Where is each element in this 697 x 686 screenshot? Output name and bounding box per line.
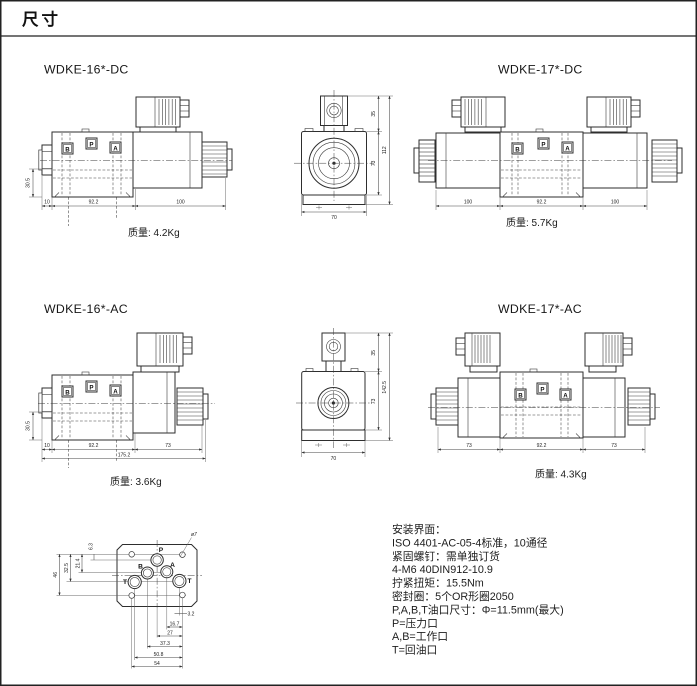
end-plug (39, 388, 52, 418)
svg-text:73: 73 (371, 398, 377, 404)
drawing-wdke-16-dc-side: WDKE-16*-DC (26, 63, 233, 240)
dim-30-5: 30.5 (26, 178, 32, 188)
svg-text:92.2: 92.2 (89, 443, 99, 449)
svg-text:27: 27 (167, 630, 173, 636)
electrical-connector-left (456, 333, 500, 372)
knurled-nut-left (414, 140, 435, 182)
svg-text:B: B (515, 146, 520, 153)
note-line: 拧紧扭矩：15.5Nm (392, 576, 484, 590)
note-line: ISO 4401-AC-05-4标准，10通径 (392, 535, 548, 549)
svg-text:37.3: 37.3 (160, 641, 170, 647)
svg-text:35: 35 (371, 350, 377, 356)
electrical-connector-right (587, 97, 640, 132)
foot-micro-marks (315, 443, 350, 447)
dim-70: 70 (331, 215, 337, 221)
port-box-a: A (110, 142, 121, 153)
svg-text:92.2: 92.2 (537, 200, 547, 206)
drawing-title: WDKE-17*-AC (498, 302, 582, 316)
port-box-a: A (562, 142, 573, 153)
dim-100: 100 (176, 200, 185, 206)
dim-total-height: 112 (382, 146, 388, 154)
svg-text:P: P (541, 141, 545, 148)
drawing-wdke-dc-front: 35 73 112 70 (294, 90, 393, 221)
svg-text:16.7: 16.7 (170, 621, 180, 627)
weight-label: 质量: 4.3Kg (535, 469, 587, 481)
port-box-b: B (515, 389, 526, 400)
drawing-wdke-17-ac-side: WDKE-17*-AC (428, 302, 660, 481)
port-label-a: A (170, 562, 175, 569)
note-line: P=压力口 (392, 617, 438, 630)
port-label-t-right: T (187, 578, 191, 585)
svg-text:70: 70 (331, 456, 337, 462)
note-line: 紧固螺钉：需单独订货 (392, 549, 500, 563)
electrical-connector-front (322, 333, 345, 372)
vertical-dimensions: 46 32.5 21.4 6.3 (53, 543, 95, 595)
end-plug (39, 145, 52, 175)
svg-text:100: 100 (611, 200, 620, 206)
solenoid (133, 132, 202, 188)
svg-text:32.5: 32.5 (64, 563, 70, 573)
svg-text:92.2: 92.2 (537, 443, 547, 449)
svg-text:A: A (563, 392, 568, 399)
electrical-connector-right (585, 333, 632, 372)
svg-text:6.3: 6.3 (89, 543, 95, 550)
port-label-t-left: T (123, 579, 127, 586)
electrical-connector-left (452, 97, 505, 132)
drawing-wdke-17-dc-side: WDKE-17*-DC (414, 63, 682, 230)
svg-text:142.5: 142.5 (382, 381, 388, 394)
svg-text:B: B (518, 392, 523, 399)
drawing-wdke-16-ac-side: WDKE-16*-AC (26, 302, 216, 488)
drawing-title: WDKE-16*-DC (44, 63, 129, 77)
note-line: A,B=工作口 (392, 630, 448, 643)
dim-73: 73 (371, 160, 377, 166)
knurled-nut (202, 142, 232, 177)
port-box-b: B (62, 386, 73, 397)
dim-35: 35 (371, 111, 377, 117)
svg-text:10: 10 (44, 443, 50, 449)
port-label-b: B (138, 564, 143, 571)
svg-text:73: 73 (611, 443, 617, 449)
port-label-p: P (89, 141, 93, 148)
svg-text:P: P (540, 386, 544, 393)
drawing-mounting-pattern: P B A T T ø7 46 32.5 21.4 6.3 (53, 532, 202, 669)
horizontal-dimensions: 3.2 16.7 27 37.3 50.8 54 (132, 612, 195, 667)
drawing-sheet: 尺寸 WDKE-16*-DC (0, 0, 697, 686)
note-line: 4-M6 40DIN912-10.9 (392, 564, 493, 576)
knurled-nut-right (628, 388, 655, 425)
port-box-p: P (538, 138, 549, 149)
svg-text:46: 46 (53, 572, 59, 578)
port-label-a: A (113, 145, 118, 152)
port-label-p: P (159, 547, 164, 554)
note-line: T=回油口 (392, 643, 437, 657)
drawing-title: WDKE-16*-AC (44, 302, 128, 316)
note-line: P,A,B,T油口尺寸：Φ=11.5mm(最大) (392, 602, 564, 616)
port-box-b: B (62, 143, 73, 154)
weight-label: 质量: 4.2Kg (128, 227, 180, 239)
port-box-a: A (560, 389, 571, 400)
electrical-connector (136, 97, 189, 132)
datasheet-page: 尺寸 WDKE-16*-DC (0, 0, 697, 686)
weight-label: 质量: 3.6Kg (110, 476, 162, 488)
svg-text:50.8: 50.8 (154, 652, 164, 658)
drawing-wdke-ac-front: 35 73 142.5 70 (296, 328, 393, 462)
dim-92-2: 92.2 (89, 200, 99, 206)
electrical-connector-front (321, 96, 348, 132)
knurled-nut-right (652, 140, 682, 182)
svg-text:100: 100 (464, 200, 473, 206)
port-box-p: P (86, 138, 97, 149)
svg-text:3.2: 3.2 (188, 612, 195, 618)
note-line: 安装界面： (392, 522, 446, 536)
dim-10: 10 (44, 200, 50, 206)
svg-text:73: 73 (165, 443, 171, 449)
notes-block: 安装界面： ISO 4401-AC-05-4标准，10通径 紧固螺钉：需单独订货… (392, 522, 564, 657)
knurled-nut (177, 388, 208, 425)
electrical-connector (137, 333, 192, 372)
port-label-b: B (65, 146, 70, 153)
valve-body (500, 372, 583, 438)
port-box-p: P (537, 383, 548, 394)
hole-callout-label: ø7 (191, 532, 197, 538)
port-box-a: A (110, 385, 121, 396)
svg-text:A: A (113, 388, 118, 395)
page-title: 尺寸 (22, 9, 61, 29)
foot-micro-marks (316, 206, 352, 210)
svg-text:175.2: 175.2 (118, 452, 131, 458)
port-box-p: P (86, 381, 97, 392)
svg-text:73: 73 (466, 443, 472, 449)
svg-text:21.4: 21.4 (76, 558, 82, 568)
weight-label: 质量: 5.7Kg (506, 217, 558, 229)
solenoid (133, 372, 175, 433)
svg-text:54: 54 (154, 661, 160, 667)
svg-text:P: P (89, 384, 93, 391)
svg-text:A: A (565, 145, 570, 152)
port-box-b: B (512, 143, 523, 154)
svg-text:B: B (65, 389, 70, 396)
svg-text:30.5: 30.5 (26, 421, 32, 431)
knurled-nut-left (431, 388, 458, 425)
note-line: 密封圈：5个OR形圈2050 (392, 589, 514, 603)
drawing-title: WDKE-17*-DC (498, 63, 583, 77)
